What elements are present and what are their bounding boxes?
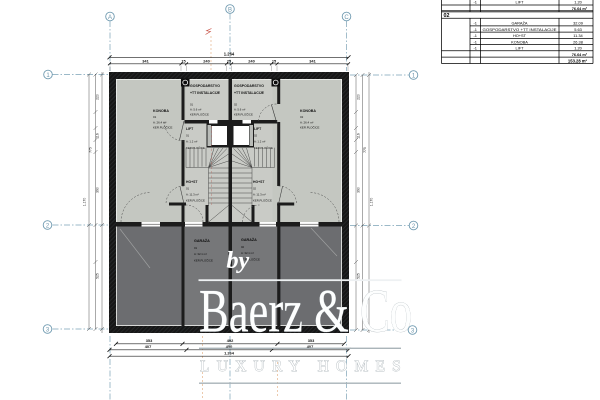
svg-text:LIFT: LIFT bbox=[186, 127, 194, 131]
svg-text:390: 390 bbox=[96, 187, 100, 193]
svg-text:KER.PLOČICE: KER.PLOČICE bbox=[186, 145, 205, 150]
svg-text:220: 220 bbox=[357, 94, 361, 100]
svg-text:76.64 m²: 76.64 m² bbox=[572, 7, 588, 11]
svg-text:LIFT: LIFT bbox=[254, 127, 262, 131]
svg-text:116: 116 bbox=[96, 133, 100, 139]
svg-text:02: 02 bbox=[253, 187, 257, 191]
svg-text:A: 26.4 m²: A: 26.4 m² bbox=[300, 121, 313, 125]
svg-text:A: 1.2 m²: A: 1.2 m² bbox=[254, 140, 265, 144]
svg-text:01: 01 bbox=[186, 134, 190, 138]
svg-text:01: 01 bbox=[194, 246, 198, 250]
svg-text:26.38: 26.38 bbox=[573, 39, 583, 44]
svg-text:1.20: 1.20 bbox=[574, 0, 582, 5]
svg-text:11.34: 11.34 bbox=[573, 33, 583, 38]
svg-text:A: 5.6 m²: A: 5.6 m² bbox=[190, 108, 201, 112]
svg-text:407: 407 bbox=[145, 344, 152, 349]
svg-text:341: 341 bbox=[142, 58, 149, 63]
svg-text:02: 02 bbox=[444, 13, 450, 19]
svg-text:KER.PLOČICE: KER.PLOČICE bbox=[253, 198, 272, 203]
svg-text:HO+ST: HO+ST bbox=[186, 180, 198, 184]
svg-text:-1: -1 bbox=[473, 0, 476, 5]
svg-text:Baerz & Co: Baerz & Co bbox=[199, 279, 412, 346]
svg-text:02: 02 bbox=[234, 103, 238, 107]
svg-text:A: 11.3 m²: A: 11.3 m² bbox=[253, 193, 266, 197]
svg-text:KER.PLOČICE: KER.PLOČICE bbox=[190, 112, 209, 117]
svg-text:+TT INSTALACIJE: +TT INSTALACIJE bbox=[190, 91, 221, 95]
svg-text:220: 220 bbox=[96, 94, 100, 100]
svg-text:B: B bbox=[228, 7, 232, 13]
svg-text:-1: -1 bbox=[473, 21, 476, 26]
svg-text:KER.PLOČICE: KER.PLOČICE bbox=[234, 112, 253, 117]
svg-text:LIFT: LIFT bbox=[516, 46, 525, 51]
svg-text:HO+ST: HO+ST bbox=[253, 180, 265, 184]
svg-text:GARAŽA: GARAŽA bbox=[512, 21, 528, 26]
svg-text:390: 390 bbox=[357, 187, 361, 193]
svg-text:1.264: 1.264 bbox=[224, 52, 235, 57]
svg-text:GOSPODARSTVO: GOSPODARSTVO bbox=[190, 84, 220, 88]
svg-text:5.63: 5.63 bbox=[574, 27, 582, 32]
svg-text:HO+ST: HO+ST bbox=[513, 33, 527, 38]
svg-text:KONOBA: KONOBA bbox=[300, 109, 316, 113]
svg-text:341: 341 bbox=[309, 58, 316, 63]
svg-text:KER.PLOČICE: KER.PLOČICE bbox=[153, 125, 173, 130]
svg-text:240: 240 bbox=[203, 58, 210, 63]
svg-text:KER.PLOČICE: KER.PLOČICE bbox=[194, 258, 213, 263]
svg-text:353: 353 bbox=[146, 338, 153, 343]
svg-text:-1: -1 bbox=[473, 39, 476, 44]
svg-text:C: C bbox=[344, 15, 349, 21]
svg-text:01: 01 bbox=[190, 103, 194, 107]
svg-text:1.264: 1.264 bbox=[224, 351, 235, 356]
svg-text:02: 02 bbox=[300, 115, 304, 119]
svg-text:GOSPODARSTVO +TT INSTALACIJE: GOSPODARSTVO +TT INSTALACIJE bbox=[483, 28, 558, 32]
svg-text:775: 775 bbox=[363, 147, 367, 153]
svg-text:KONOBA: KONOBA bbox=[153, 109, 169, 113]
svg-text:KER.PLOČICE: KER.PLOČICE bbox=[300, 125, 320, 130]
svg-text:A: A bbox=[108, 15, 112, 21]
svg-text:A: 32.1 m²: A: 32.1 m² bbox=[194, 252, 207, 256]
svg-text:-1: -1 bbox=[473, 33, 476, 38]
svg-text:02: 02 bbox=[254, 134, 258, 138]
svg-text:-1: -1 bbox=[473, 46, 476, 51]
svg-text:01: 01 bbox=[186, 187, 190, 191]
svg-text:by: by bbox=[227, 248, 250, 274]
svg-text:LUXURY HOMES: LUXURY HOMES bbox=[200, 358, 408, 375]
svg-text:GARAŽA: GARAŽA bbox=[194, 238, 210, 243]
svg-text:A: 11.3 m²: A: 11.3 m² bbox=[186, 193, 199, 197]
svg-text:+TT INSTALACIJE: +TT INSTALACIJE bbox=[234, 91, 265, 95]
svg-text:A: 5.6 m²: A: 5.6 m² bbox=[234, 108, 245, 112]
svg-text:01: 01 bbox=[153, 115, 157, 119]
svg-text:76.64 m²: 76.64 m² bbox=[572, 53, 588, 57]
svg-text:LIFT: LIFT bbox=[516, 0, 525, 5]
svg-text:GOSPODARSTVO: GOSPODARSTVO bbox=[234, 84, 264, 88]
svg-text:153.28 m²: 153.28 m² bbox=[568, 58, 588, 63]
svg-text:KER.PLOČICE: KER.PLOČICE bbox=[186, 198, 205, 203]
svg-text:116: 116 bbox=[357, 133, 361, 139]
svg-text:775: 775 bbox=[89, 147, 93, 153]
svg-text:1.170: 1.170 bbox=[370, 198, 374, 207]
svg-text:KER.PLOČICE: KER.PLOČICE bbox=[254, 145, 273, 150]
svg-text:32.09: 32.09 bbox=[573, 21, 583, 26]
svg-text:GARAŽA: GARAŽA bbox=[241, 237, 257, 242]
svg-text:KONOBA: KONOBA bbox=[511, 39, 528, 44]
svg-text:240: 240 bbox=[248, 58, 255, 63]
svg-text:525: 525 bbox=[96, 273, 100, 279]
svg-text:1.170: 1.170 bbox=[83, 198, 87, 207]
svg-text:1.20: 1.20 bbox=[574, 46, 582, 51]
svg-text:A: 26.4 m²: A: 26.4 m² bbox=[153, 121, 166, 125]
svg-text:-1: -1 bbox=[473, 27, 476, 32]
svg-text:A: 1.2 m²: A: 1.2 m² bbox=[186, 140, 197, 144]
